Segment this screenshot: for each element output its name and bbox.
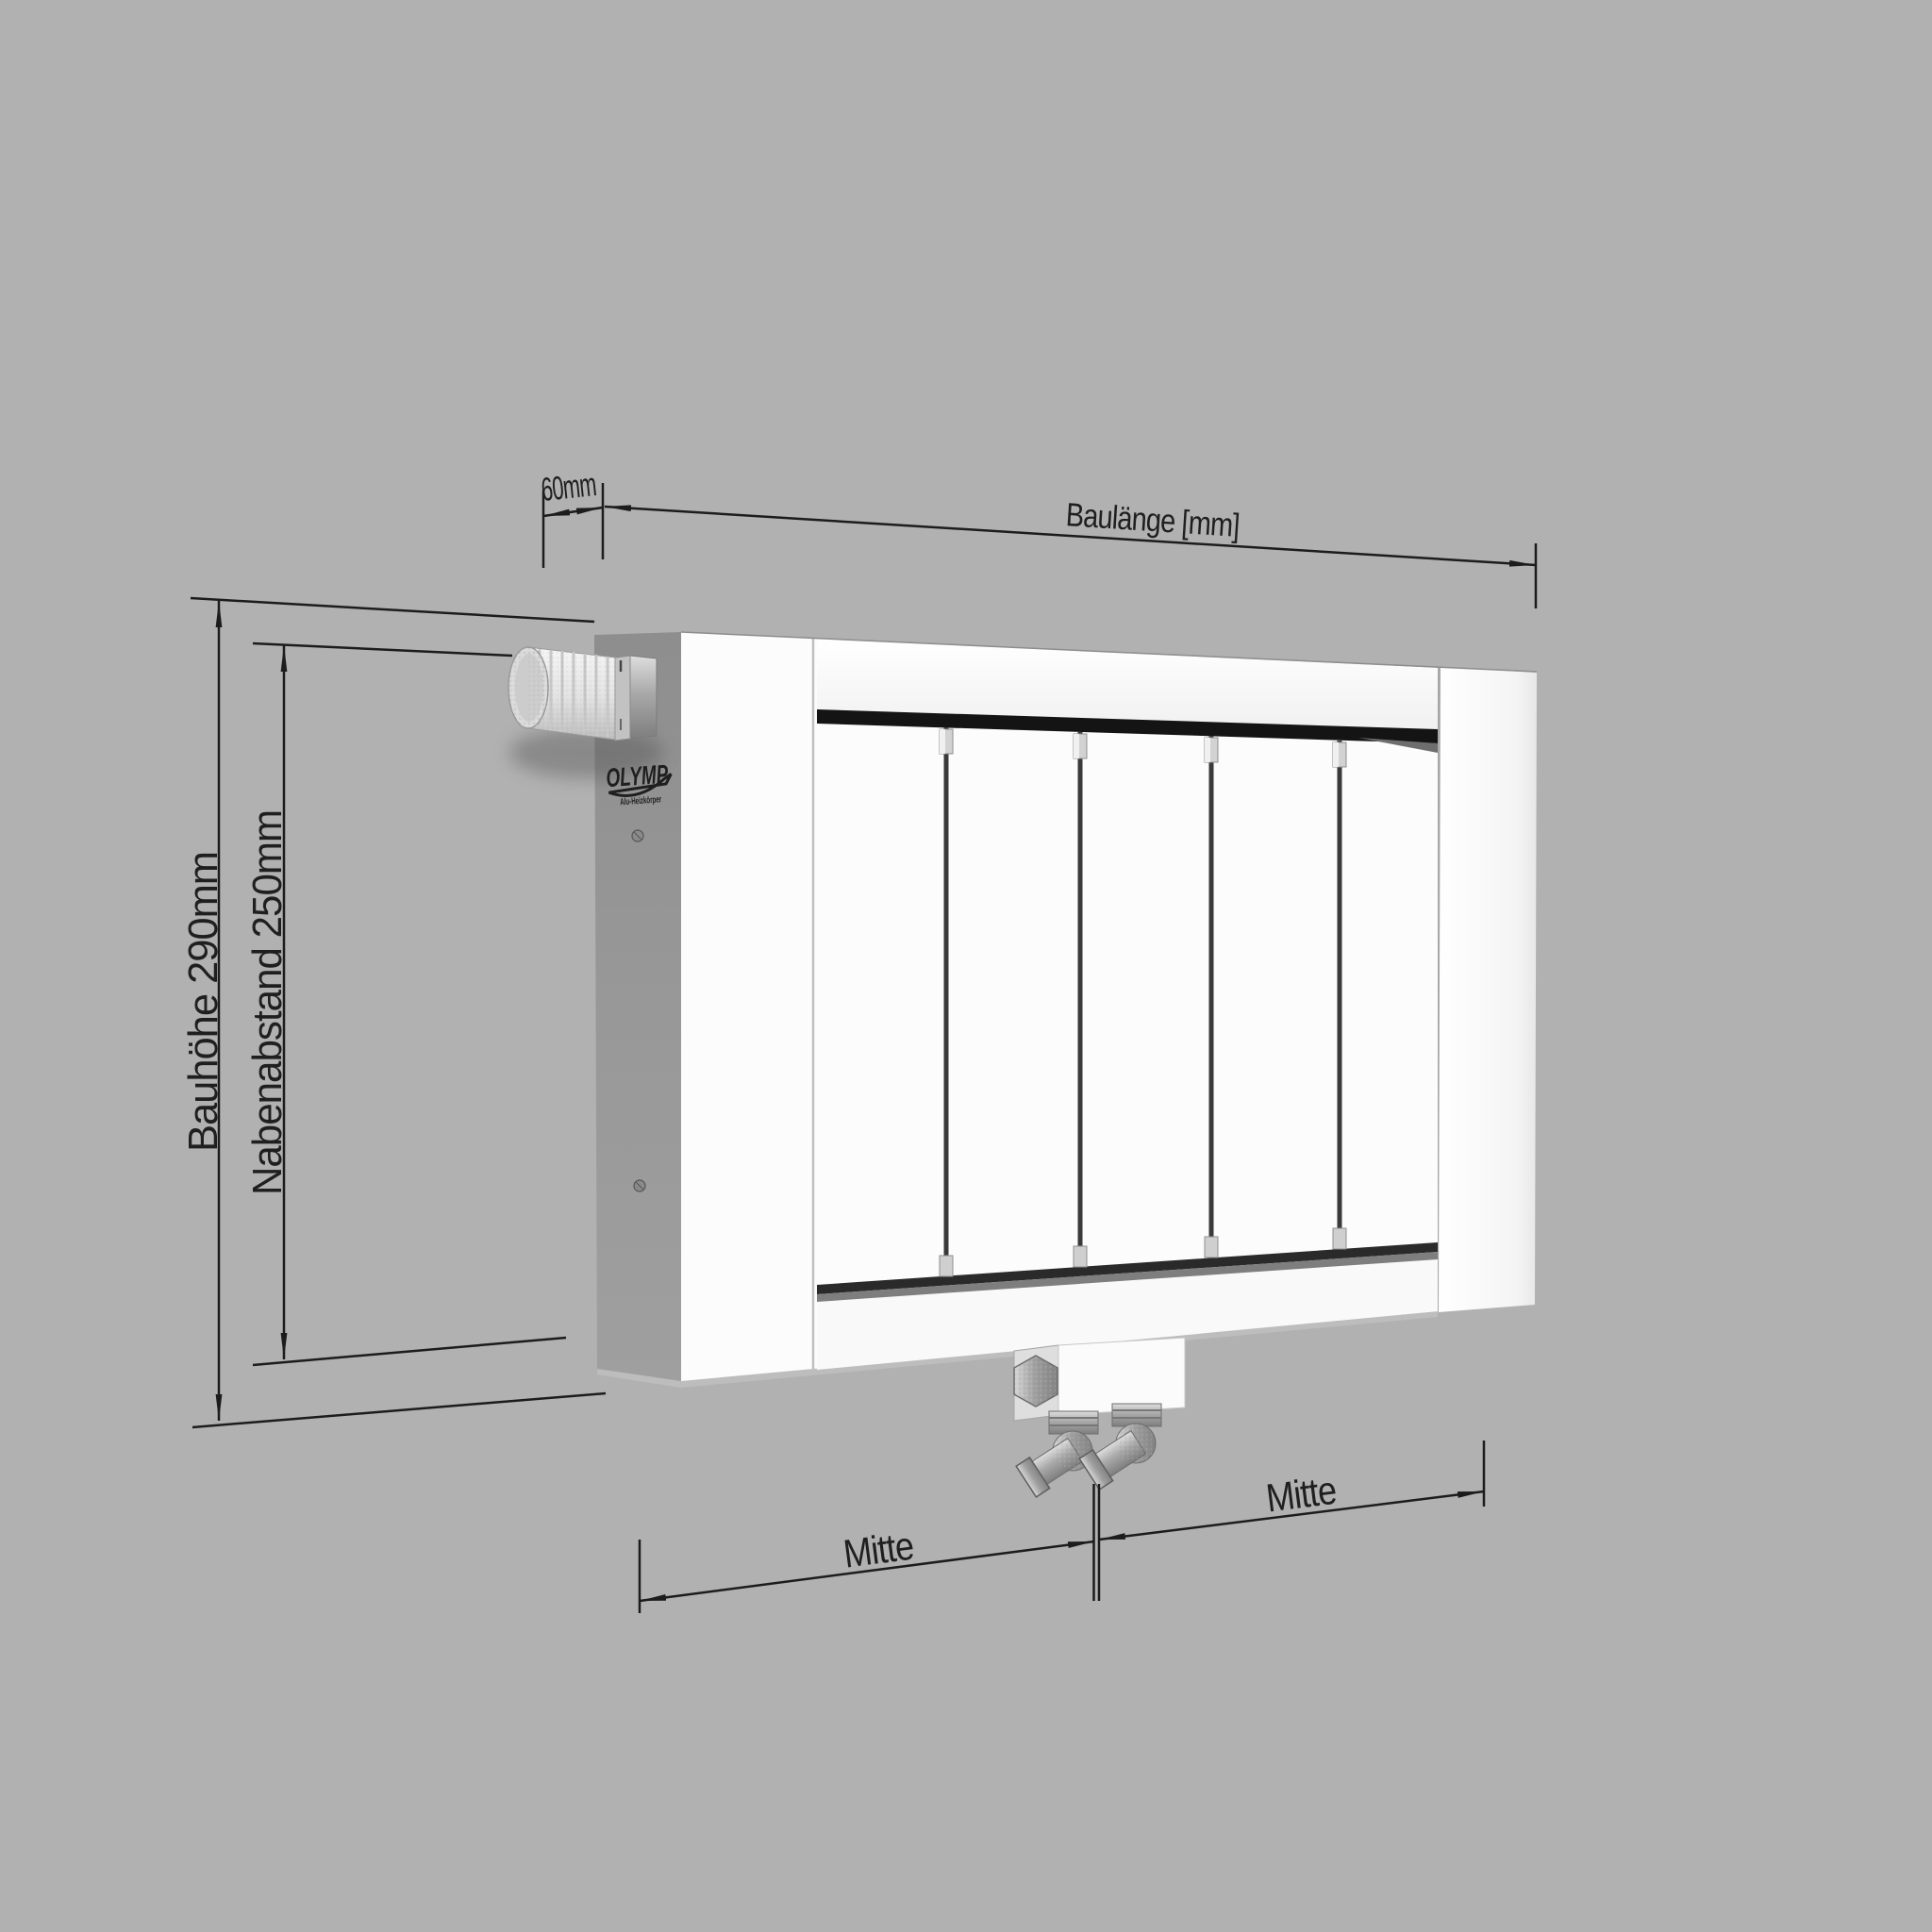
thermostat-valve-head [508,647,657,741]
height-dimension-label: Bauhöhe 290mm [180,852,226,1152]
radiator-dimension-diagram: OLYMP Alu-Heizkörper [0,0,1932,1932]
radiator-right-end-piece [1439,667,1537,1312]
mitte-right-label: Mitte [1264,1468,1339,1521]
mitte-left-label: Mitte [841,1524,915,1576]
hub-dimension-label: Nabenabstand 250mm [244,810,291,1195]
technical-drawing-canvas: OLYMP Alu-Heizkörper [0,0,1932,1932]
depth-dimension-label: 60mm [540,466,598,508]
